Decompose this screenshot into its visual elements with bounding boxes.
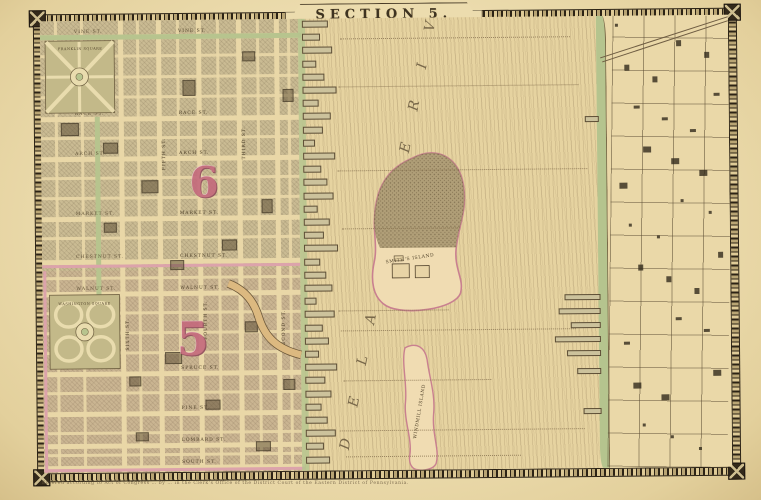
street-label: WALNUT ST. — [180, 286, 220, 291]
wharf-pier — [303, 126, 323, 133]
street-lane — [274, 19, 283, 471]
wharf-pier — [302, 86, 336, 93]
camden-building-mark — [615, 24, 618, 27]
camden-building-mark — [619, 183, 627, 189]
street-label: SIXTH ST. — [125, 318, 130, 350]
wharf-pier — [305, 351, 319, 358]
street-label: MARKET ST. — [76, 212, 115, 217]
camden-building-mark — [652, 76, 657, 82]
wharf-pier — [305, 298, 317, 305]
camden-building-mark — [690, 129, 696, 132]
camden-building-mark — [643, 146, 651, 152]
wharf-pier — [304, 245, 338, 252]
wharf-pier — [305, 324, 323, 331]
camden-building-mark — [633, 383, 641, 389]
camden-building-mark — [671, 158, 679, 164]
camden-building-mark — [704, 52, 709, 58]
building-block — [256, 441, 271, 451]
franklin-square-label: FRANKLIN SQUARE — [48, 47, 112, 52]
wharf-pier — [303, 113, 331, 120]
camden-building-mark — [699, 447, 702, 450]
camden-building-mark — [657, 235, 660, 238]
camden-building-mark — [699, 170, 707, 176]
wharf-pier — [303, 166, 321, 173]
camden-building-mark — [624, 342, 630, 345]
street-lane — [118, 21, 127, 473]
wharf-pier — [306, 430, 336, 437]
camden-building-mark — [713, 370, 721, 376]
street-lane — [156, 20, 165, 472]
wharf-pier — [304, 285, 332, 292]
wharf-pier — [304, 192, 334, 199]
wharf-pier — [302, 47, 332, 54]
building-block — [283, 89, 294, 102]
street-label: WALNUT ST. — [76, 287, 116, 292]
camden-pier — [571, 322, 601, 328]
camden-building-mark — [629, 224, 632, 227]
wharf-pier — [304, 219, 330, 226]
map-frame: SECTION 5. VINE ST.VINE ST.RACE ST.RACE … — [33, 8, 739, 481]
street-label: THIRD ST. — [241, 126, 246, 159]
wharf-pier — [305, 364, 337, 371]
wharf-pier — [306, 417, 328, 424]
ward-number-5: 5 — [177, 312, 210, 366]
building-block — [283, 379, 295, 390]
building-block — [61, 123, 79, 136]
street-label: ARCH ST. — [179, 151, 209, 156]
street-label: LOMBARD ST. — [182, 438, 226, 443]
building-block — [222, 239, 237, 250]
wharf-pier — [303, 179, 327, 186]
wharf-pier — [305, 377, 325, 384]
camden-building-mark — [671, 435, 674, 438]
street-lane — [136, 20, 143, 472]
camden-building-mark — [718, 252, 723, 258]
wharf-pier — [306, 443, 324, 450]
camden-building-mark — [714, 93, 720, 96]
wharf-pier — [302, 21, 328, 28]
street-label: VINE ST. — [178, 29, 207, 34]
street-label: CHESTNUT ST. — [180, 254, 228, 259]
building-block — [129, 376, 141, 386]
camden-building-mark — [661, 394, 669, 400]
wharf-pier — [303, 100, 319, 107]
street-lane — [236, 19, 245, 471]
camden-building-mark — [634, 106, 640, 109]
wharf-pier — [302, 73, 324, 80]
map-content: VINE ST.VINE ST.RACE ST.RACE ST.ARCH ST.… — [40, 15, 732, 474]
camden-pier — [584, 408, 602, 414]
camden-building-mark — [709, 211, 712, 214]
wharf-pier — [304, 258, 320, 265]
camden-pier — [577, 368, 601, 374]
street-lane — [256, 19, 263, 471]
camden-building-mark — [694, 288, 699, 294]
street-label: FIFTH ST. — [161, 138, 166, 170]
camden-pier — [555, 336, 601, 342]
camden-pier — [585, 116, 599, 122]
camden-pier — [559, 308, 601, 314]
building-block — [262, 199, 273, 213]
street-label: MARKET ST. — [180, 211, 219, 216]
wharf-pier — [306, 403, 322, 410]
building-block — [182, 80, 195, 96]
street-label: CHESTNUT ST. — [76, 255, 124, 260]
wharf-pier — [304, 271, 326, 278]
camden-pier — [567, 350, 601, 356]
wharf-pier — [304, 205, 318, 212]
building-block — [136, 432, 149, 441]
street-label: SPRUCE ST. — [181, 366, 219, 371]
map-sheet: SECTION 5. VINE ST.VINE ST.RACE ST.RACE … — [0, 0, 761, 500]
wharf-pier — [305, 311, 335, 318]
building-block — [141, 180, 158, 193]
wharf-pier — [303, 152, 335, 159]
street-lane — [196, 20, 205, 472]
street-label: PINE ST. — [182, 406, 210, 411]
washington-square-label: WASHINGTON SQUARE — [52, 302, 118, 307]
camden-building-mark — [704, 329, 710, 332]
camden-building-mark — [638, 265, 643, 271]
camden-building-mark — [676, 317, 682, 320]
building-block — [242, 51, 255, 61]
ward-number-6: 6 — [189, 158, 219, 207]
camden-building-mark — [662, 117, 668, 120]
camden-building-mark — [666, 276, 671, 282]
street-lane — [287, 19, 294, 471]
building-block — [104, 223, 117, 233]
camden-building-mark — [676, 40, 681, 46]
green-route-lane — [95, 117, 102, 297]
camden-building-mark — [643, 424, 646, 427]
copyright-imprint: Entered according to Act of Congress … b… — [42, 481, 409, 486]
building-block — [245, 321, 258, 332]
camden-building-mark — [681, 199, 684, 202]
camden-street-grid — [607, 15, 732, 468]
wharf-pier — [303, 139, 315, 146]
wharf-pier — [305, 390, 331, 397]
camden-pier — [564, 294, 600, 300]
wharf-pier — [302, 60, 316, 67]
camden-building-mark — [624, 65, 629, 71]
street-label: VINE ST. — [74, 30, 103, 35]
street-label: SOUTH ST. — [182, 460, 217, 465]
street-label: SECOND ST. — [281, 310, 286, 349]
wharf-pier — [306, 456, 330, 463]
wharf-pier — [305, 337, 329, 344]
street-label: ARCH ST. — [75, 152, 105, 157]
street-label: RACE ST. — [179, 111, 209, 116]
wharf-pier — [304, 232, 324, 239]
building-block — [170, 260, 184, 270]
wharf-pier — [302, 34, 320, 41]
